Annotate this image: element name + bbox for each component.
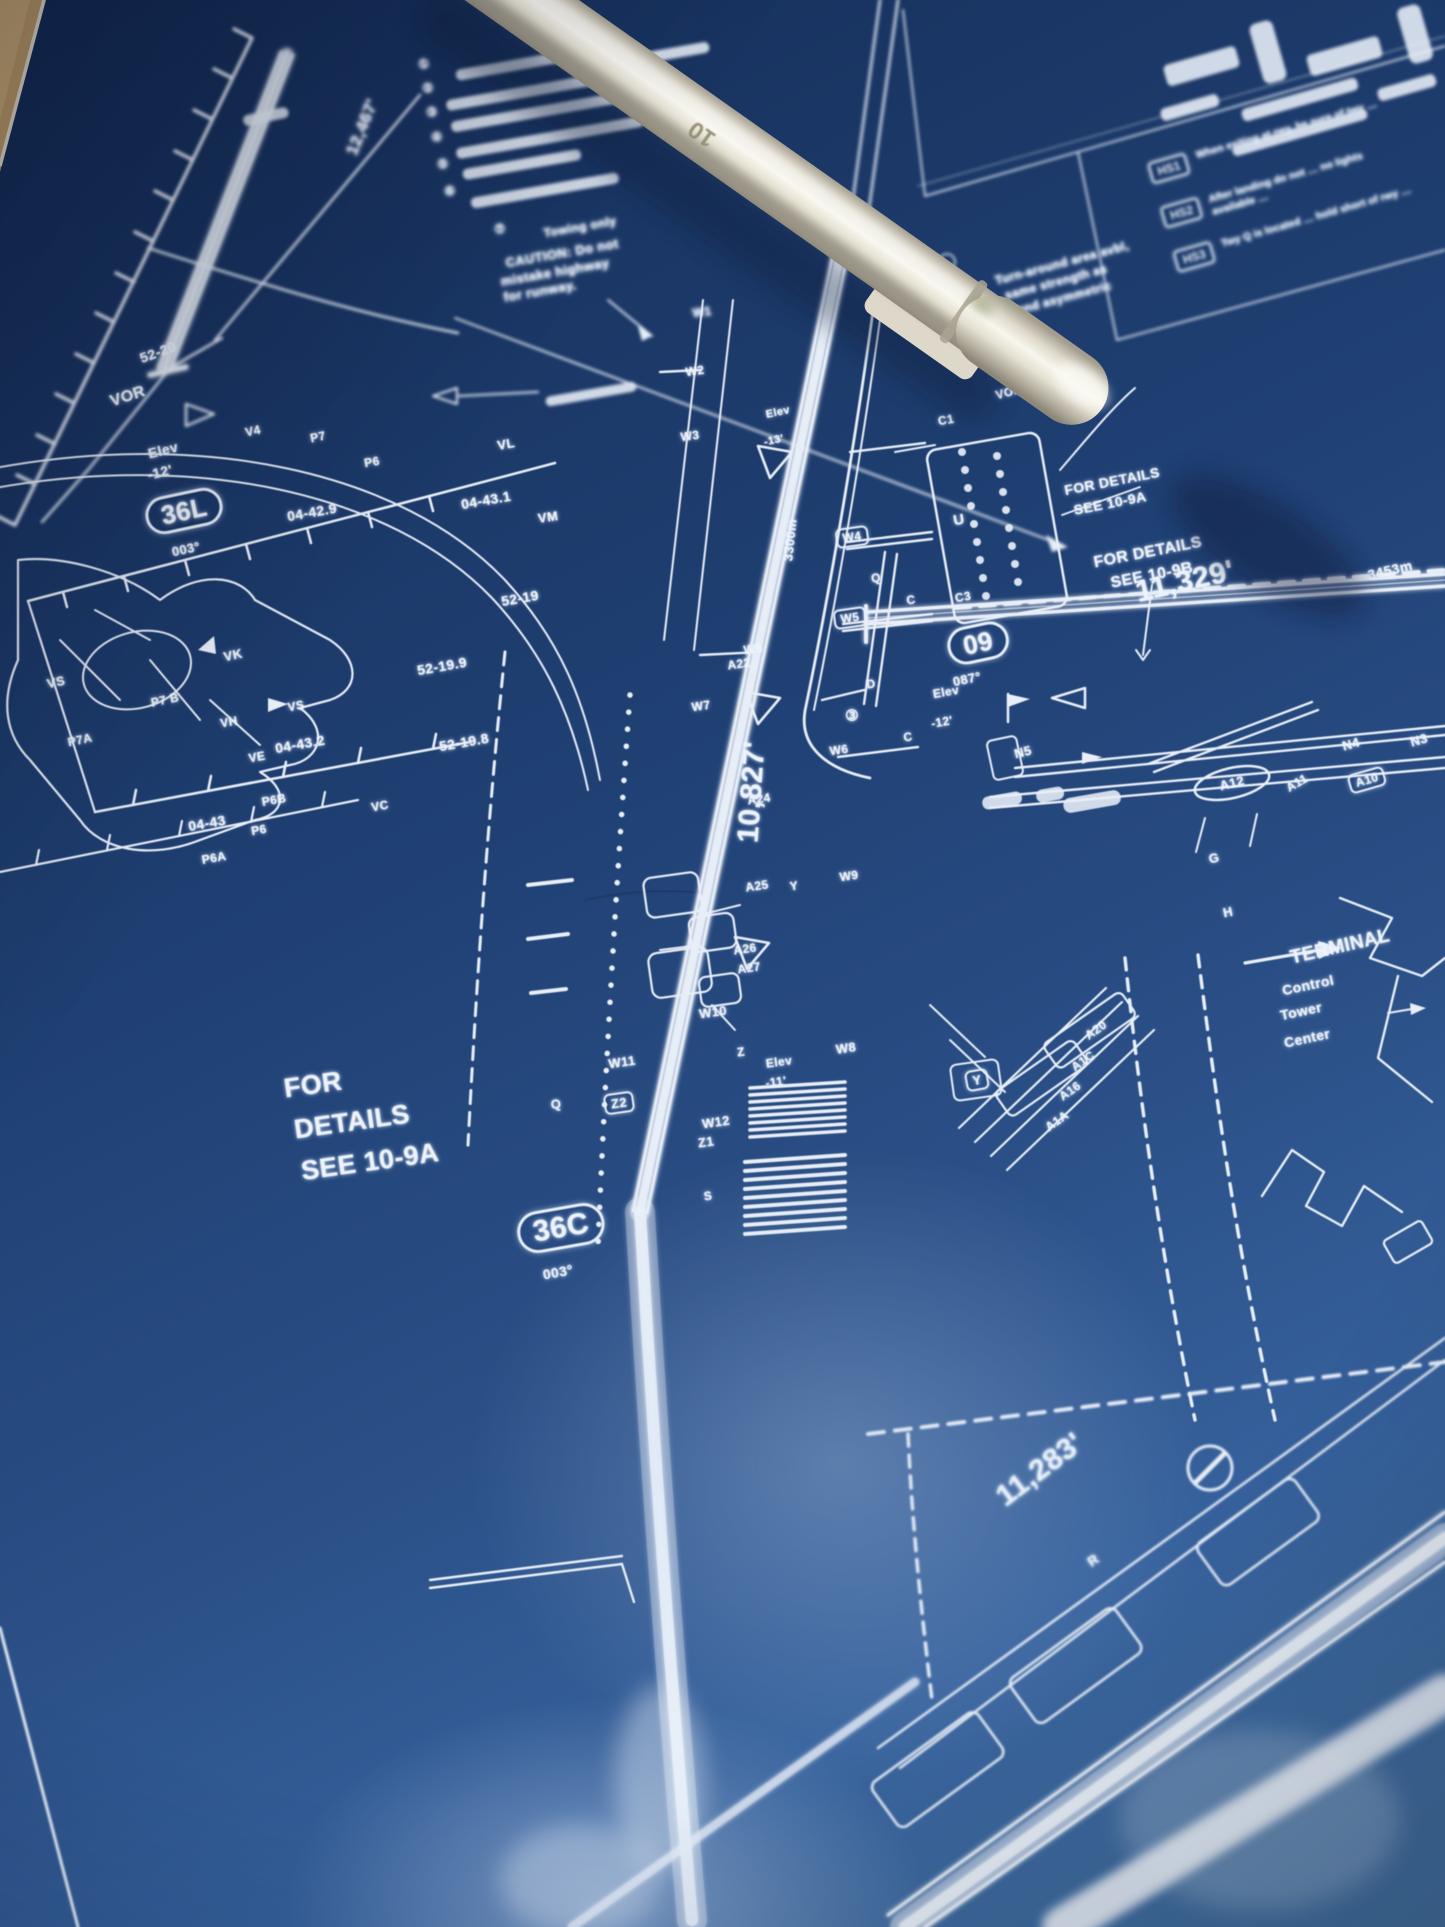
pen-shadow	[404, 0, 1009, 431]
pen-cap-shadow	[1150, 448, 1386, 644]
blueprint-photo-scene: 52-20VORElev-12'12,467'36L003°V4P7P6VLVM…	[0, 0, 1445, 1927]
pen-overlay: 10	[0, 0, 1445, 1927]
